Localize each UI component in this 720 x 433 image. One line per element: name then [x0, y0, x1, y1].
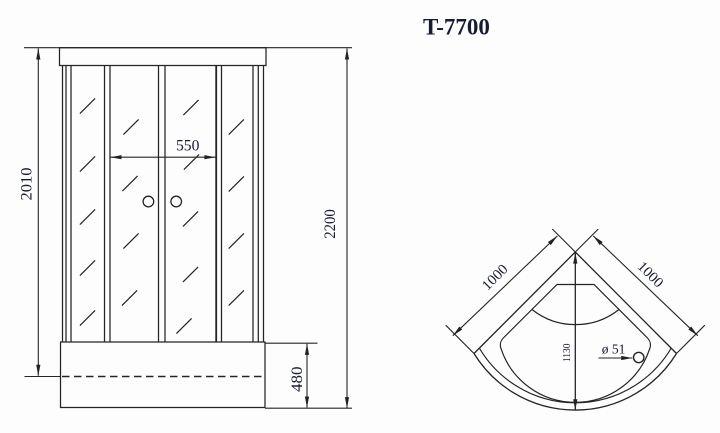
svg-text:ø 51: ø 51 — [602, 342, 626, 357]
svg-text:480: 480 — [289, 366, 306, 392]
svg-text:T-7700: T-7700 — [423, 15, 490, 40]
svg-text:550: 550 — [176, 138, 200, 155]
svg-text:2200: 2200 — [322, 209, 339, 239]
svg-text:1000: 1000 — [479, 261, 512, 294]
svg-text:2010: 2010 — [19, 168, 36, 201]
svg-text:1130: 1130 — [561, 343, 573, 362]
svg-text:1000: 1000 — [634, 259, 667, 292]
